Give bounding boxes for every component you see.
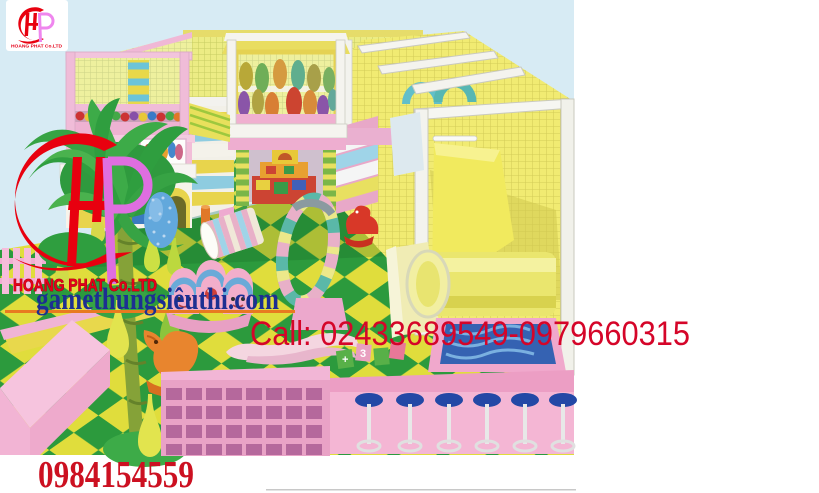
svg-text:gamethungsiêuthi.com: gamethungsiêuthi.com <box>36 281 279 316</box>
svg-text:0984154559: 0984154559 <box>38 454 194 493</box>
svg-text:Call: 02433689549-0979660315: Call: 02433689549-0979660315 <box>250 315 690 353</box>
svg-text:HOANG PHAT Co.LTD: HOANG PHAT Co.LTD <box>11 44 63 49</box>
svg-text:+: + <box>342 354 348 366</box>
